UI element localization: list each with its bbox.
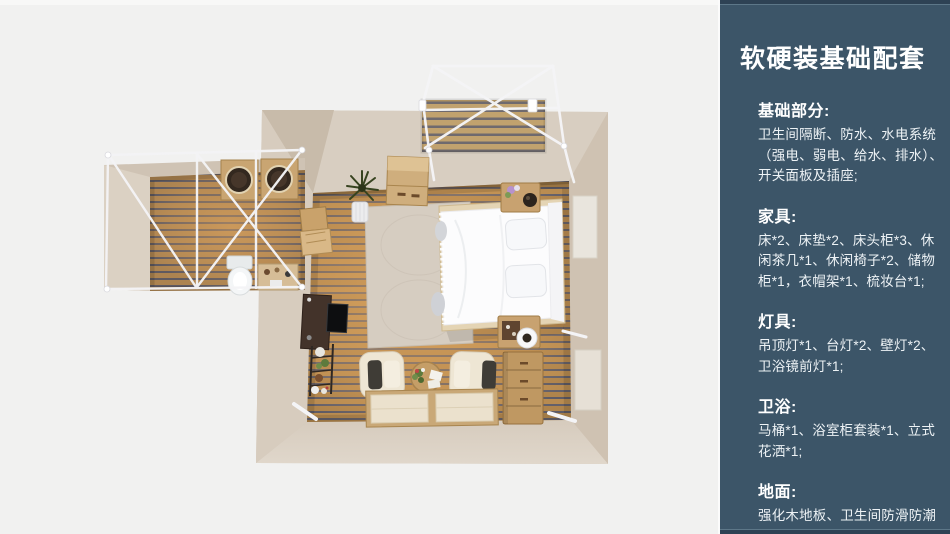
- section-line: 床*2、床垫*2、床头柜*3、休: [758, 231, 940, 252]
- section-title: 家具:: [758, 208, 940, 227]
- tv-screen: [327, 304, 348, 333]
- section-line: 马桶*1、浴室柜套装*1、立式: [758, 421, 940, 442]
- section-line: 强化木地板、卫生间防滑防潮: [758, 506, 940, 527]
- section-line: （强电、弱电、给水、排水）、: [758, 146, 940, 167]
- panel-title: 软硬装基础配套: [740, 44, 942, 74]
- bathroom: [104, 147, 324, 295]
- ribbed-pot: [352, 202, 368, 222]
- section-title: 基础部分:: [758, 102, 940, 121]
- section-lighting: 灯具: 吊顶灯*1、台灯*2、壁灯*2、 卫浴镜前灯*1;: [758, 313, 940, 377]
- section-line: 柜*1，衣帽架*1、梳妆台*1;: [758, 272, 940, 293]
- section-line: 吊顶灯*1、台灯*2、壁灯*2、: [758, 336, 940, 357]
- nightstand-bottom: [498, 316, 540, 348]
- spec-sections: 基础部分: 卫生间隔断、防水、水电系统 （强电、弱电、给水、排水）、 开关面板及…: [758, 102, 940, 534]
- section-basics: 基础部分: 卫生间隔断、防水、水电系统 （强电、弱电、给水、排水）、 开关面板及…: [758, 102, 940, 187]
- section-flooring: 地面: 强化木地板、卫生间防滑防潮 石塑板;: [758, 483, 940, 534]
- section-line: 花洒*1;: [758, 442, 940, 463]
- slide: 软硬装基础配套 基础部分: 卫生间隔断、防水、水电系统 （强电、弱电、给水、排水…: [0, 0, 950, 534]
- section-line: 开关面板及插座;: [758, 166, 940, 187]
- fur-throw: [435, 221, 447, 241]
- section-line: 闲茶几*1、休闲椅子*2、储物: [758, 251, 940, 272]
- panel-bottom-ribbon: [720, 529, 950, 534]
- section-title: 地面:: [758, 483, 940, 502]
- section-title: 灯具:: [758, 313, 940, 332]
- storage-cabinet: [386, 156, 429, 205]
- section-furniture: 家具: 床*2、床垫*2、床头柜*3、休 闲茶几*1、休闲椅子*2、储物 柜*1…: [758, 208, 940, 293]
- tatami-mats: [366, 389, 499, 427]
- floorplan-render: [0, 0, 718, 534]
- toilet: [227, 256, 252, 295]
- fur-throw: [431, 292, 445, 316]
- info-panel: 软硬装基础配套 基础部分: 卫生间隔断、防水、水电系统 （强电、弱电、给水、排水…: [718, 0, 950, 534]
- dresser: [503, 352, 543, 424]
- section-title: 卫浴:: [758, 398, 940, 417]
- section-line: 卫生间隔断、防水、水电系统: [758, 125, 940, 146]
- section-line: 卫浴镜前灯*1;: [758, 357, 940, 378]
- nightstand-top: [501, 183, 540, 212]
- panel-top-ribbon: [720, 0, 950, 5]
- section-bathroom: 卫浴: 马桶*1、浴室柜套装*1、立式 花洒*1;: [758, 398, 940, 462]
